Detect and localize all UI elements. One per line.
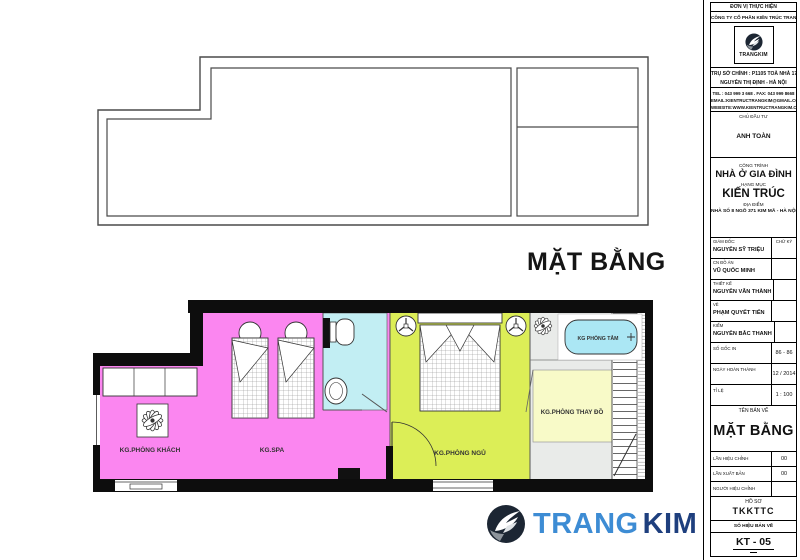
item-name: KIẾN TRÚC — [711, 188, 796, 200]
bath-step — [338, 468, 360, 479]
address-line1: TRỤ SỞ CHÍNH : P1105 TOÀ NHÀ 17T — [711, 70, 796, 79]
sheet-number-dash — [750, 552, 757, 553]
revision-value: 00 — [771, 467, 796, 481]
spa-room-label: KG.SPA — [260, 447, 285, 454]
sheet-number-section: KT - 05 — [711, 533, 796, 556]
signer-label: CN ĐỒ ÁN — [713, 260, 769, 265]
sheet-number-label: SỐ HIỆU BẢN VẼ — [711, 521, 796, 533]
dossier-section: HỒ SƠ TKKTTC — [711, 497, 796, 521]
project-name: NHÀ Ở GIA ĐÌNH — [711, 169, 796, 180]
signature-cell — [773, 280, 796, 300]
drawing-name-section: TÊN BẢN VẼ MẶT BẰNG — [711, 406, 796, 452]
signer-name: NGUYỄN VĂN THÀNH — [713, 289, 771, 295]
meta-value: 12 / 2014 — [771, 364, 796, 384]
brand-text: TRANGKIM — [533, 508, 697, 541]
signer-label: VẼ — [713, 302, 769, 307]
signer-row: VẼPHẠM QUYẾT TIẾN — [711, 301, 796, 322]
signer-row: CN ĐỒ ÁNVŨ QUỐC MINH — [711, 259, 796, 280]
signer-name: NGUYỄN BẮC THANH — [713, 331, 772, 337]
signature-cell — [771, 259, 796, 279]
bedroom-label: KG.PHÒNG NGỦ — [434, 448, 486, 457]
trangkim-logo-mark — [486, 504, 526, 544]
meta-row: TỈ LỆ 1 : 100 — [711, 385, 796, 406]
roof-inner-right-room — [517, 68, 638, 216]
signer-row: KIỂMNGUYỄN BẮC THANH — [711, 322, 796, 343]
sheet-number: KT - 05 — [733, 536, 774, 550]
website: WEBSITE:WWW.KIENTRUCTRANGKIM.COM — [711, 104, 796, 111]
wall-top-left — [93, 353, 203, 366]
meta-label: NGÀY HOÀN THÀNH — [711, 364, 771, 384]
tel-fax: TEL : 043 999 3 668 . FAX: 043 999 8668 — [711, 90, 796, 97]
roof-outer-outline — [98, 57, 648, 225]
page-title: MẶT BẰNG — [527, 248, 666, 277]
dossier-label: HỒ SƠ — [711, 499, 796, 505]
revision-value: 00 — [771, 452, 796, 466]
trangkim-logo-icon — [745, 33, 763, 51]
revision-label: LẦN HIỆU CHỈNH — [711, 452, 771, 466]
signer-row: THIẾT KẾNGUYỄN VĂN THÀNH — [711, 280, 796, 301]
company-logo-box: TRANGKIM — [711, 23, 796, 68]
revision-row: LẦN HIỆU CHỈNH 00 — [711, 452, 796, 467]
meta-value: 1 : 100 — [771, 385, 796, 405]
dressing-room-label: KG.PHÒNG THAY ĐỒ — [541, 408, 604, 416]
investor-section: CHỦ ĐẦU TƯ ANH TOÀN — [711, 112, 796, 158]
drawing-name-label: TÊN BẢN VẼ — [711, 408, 796, 414]
investor-label: CHỦ ĐẦU TƯ — [711, 114, 796, 119]
site-name: NHÀ SỐ 8 NGÕ 371 KIM MÃ - HÀ NỘI — [711, 209, 796, 214]
address-line2: NGUYỄN THỊ ĐỊNH - HÀ NỘI — [711, 79, 796, 88]
left-window — [93, 395, 100, 445]
meta-row: SỐ GỐC IN 86 - 86 — [711, 343, 796, 364]
logo-text: TRANGKIM — [739, 52, 768, 58]
meta-label: TỈ LỆ — [711, 385, 771, 405]
revision-label: NGƯỜI HIỆU CHỈNH — [711, 482, 771, 496]
site-label: ĐỊA ĐIỂM — [711, 202, 796, 207]
wall-right — [645, 300, 653, 492]
wall-top — [188, 300, 652, 313]
sink-icon — [325, 378, 347, 404]
investor-name: ANH TOÀN — [711, 133, 796, 140]
meta-row: NGÀY HOÀN THÀNH 12 / 2014 — [711, 364, 796, 385]
double-bed — [418, 313, 502, 411]
living-sliding-door — [115, 480, 177, 491]
item-label: HẠNG MỤC — [711, 182, 796, 187]
meta-label: SỐ GỐC IN — [711, 343, 771, 363]
revision-row: LẦN XUẤT BẢN 00 — [711, 467, 796, 482]
roof-inner-left-room — [107, 68, 511, 216]
email: EMAIL:KIENTRUCTRANGKIM@GMAIL.COM — [711, 97, 796, 104]
dossier-value: TKKTTC — [711, 506, 796, 516]
signer-label: KIỂM — [713, 323, 772, 328]
title-block: ĐƠN VỊ THỰC HIỆN CÔNG TY CỔ PHẦN KIẾN TR… — [710, 2, 797, 557]
company-name: CÔNG TY CỔ PHẦN KIẾN TRÚC TRANG KIM — [711, 12, 796, 23]
brand-text-first: TRANG — [533, 508, 639, 540]
signer-label: GIÁM ĐỐC: — [713, 239, 769, 244]
revision-value — [771, 482, 796, 496]
signer-label: THIẾT KẾ — [713, 281, 771, 286]
signer-name: VŨ QUỐC MINH — [713, 268, 769, 274]
dressing-floor — [533, 370, 612, 442]
project-label: CÔNG TRÌNH — [711, 163, 796, 168]
signer-name: PHẠM QUYẾT TIẾN — [713, 310, 769, 316]
unit-label: ĐƠN VỊ THỰC HIỆN — [711, 3, 796, 12]
company-contact: TEL : 043 999 3 668 . FAX: 043 999 8668 … — [711, 88, 796, 112]
wall-stub-door — [386, 446, 393, 479]
signature-cell — [771, 301, 796, 321]
roof-outline-drawing — [90, 50, 655, 232]
meta-value: 86 - 86 — [771, 343, 796, 363]
sofa — [103, 368, 197, 396]
coffee-table — [137, 404, 168, 437]
revision-label: LẦN XUẤT BẢN — [711, 467, 771, 481]
drawing-name: MẶT BẰNG — [711, 423, 796, 439]
brand-text-second: KIM — [643, 508, 698, 540]
signature-cell — [774, 322, 796, 342]
signature-label: CHỮ KÝ — [771, 238, 796, 258]
revision-row: NGƯỜI HIỆU CHỈNH — [711, 482, 796, 497]
bathroom-label: KG PHÒNG TẮM — [578, 334, 619, 342]
signer-name: NGUYỄN SỸ TRIỆU — [713, 247, 769, 253]
floor-plan: KG.PHÒNG KHÁCH KG.SPA KG.PHÒNG NGỦ KG.PH… — [90, 296, 655, 496]
entry-opening — [433, 480, 493, 491]
living-room-label: KG.PHÒNG KHÁCH — [120, 445, 181, 454]
company-address: TRỤ SỞ CHÍNH : P1105 TOÀ NHÀ 17T NGUYỄN … — [711, 68, 796, 88]
footer-brand: TRANGKIM — [486, 504, 697, 544]
sheet-frame-line — [703, 0, 704, 560]
project-section: CÔNG TRÌNH NHÀ Ở GIA ĐÌNH HẠNG MỤC KIẾN … — [711, 158, 796, 238]
signer-row: GIÁM ĐỐC:NGUYỄN SỸ TRIỆU CHỮ KÝ — [711, 238, 796, 259]
